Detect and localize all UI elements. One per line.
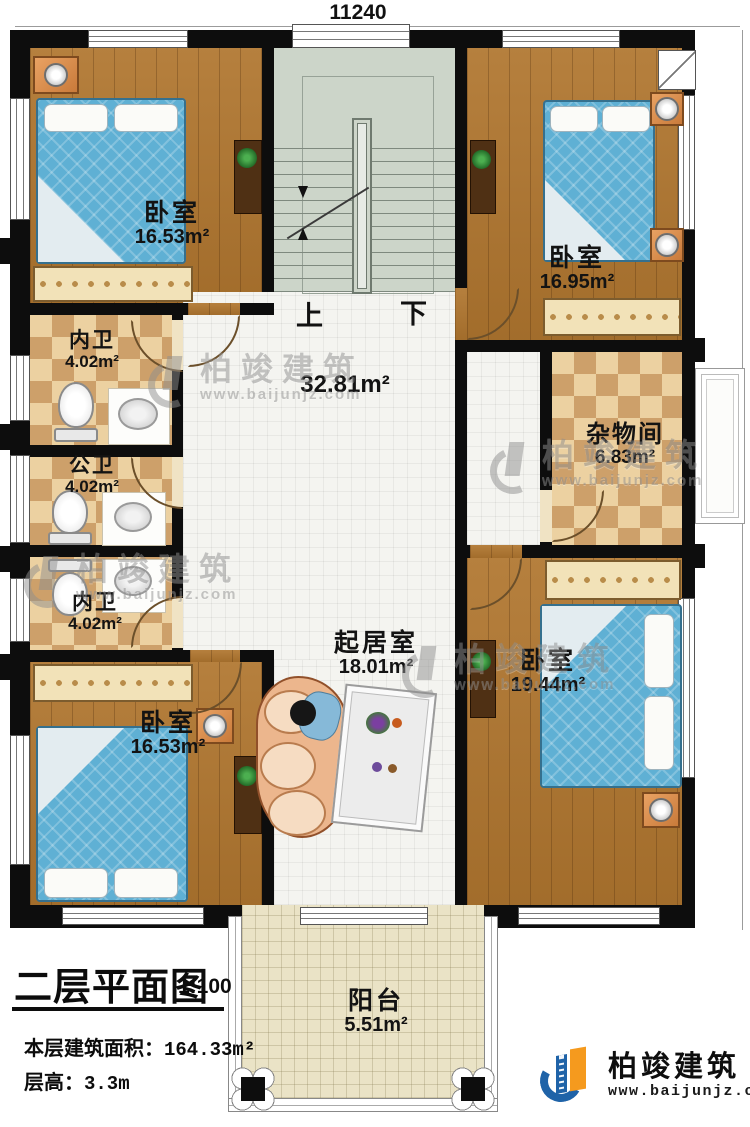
toilet-icon: [58, 382, 94, 428]
watermark-url: www.baijunjz.com: [76, 585, 240, 605]
floor-height-line: 层高：3.3m: [24, 1066, 130, 1095]
window: [62, 907, 204, 925]
coffee-table-icon: [331, 684, 437, 833]
nightstand-icon: [33, 56, 79, 94]
door-opening: [190, 650, 240, 662]
watermark-name: 柏竣建筑: [76, 553, 240, 585]
window: [502, 30, 620, 48]
lamp-icon: [655, 97, 679, 121]
lamp-icon: [44, 63, 68, 87]
watermark: 柏竣建筑 www.baijunjz.com: [402, 642, 618, 696]
wall-pier: [0, 546, 10, 572]
watermark-url: www.baijunjz.com: [542, 471, 706, 491]
lamp-icon: [655, 233, 679, 257]
nightstand-icon: [650, 92, 684, 126]
room-area: 4.02m²: [65, 353, 119, 371]
stair-rail: [352, 118, 372, 294]
flower-icon: [366, 712, 390, 734]
toilet-icon: [52, 490, 88, 534]
room-name: 卧室: [540, 245, 615, 272]
room-area: 4.02m²: [68, 615, 122, 633]
wardrobe-icon: [33, 664, 193, 702]
sink-icon: [114, 502, 152, 532]
sofa-cushion: [268, 790, 326, 836]
brand-website: www.baijunjz.com: [608, 1083, 750, 1100]
wall-pier: [0, 424, 10, 450]
corner-niche: [658, 50, 696, 90]
stair-up-label: 上: [296, 294, 323, 333]
room-label-balcony: 阳台 5.51m²: [344, 988, 407, 1037]
watermark-logo-icon: [148, 352, 192, 406]
watermark-name: 柏竣建筑: [542, 439, 706, 471]
pillow-icon: [550, 106, 598, 132]
floor-height-label: 层高：: [24, 1072, 84, 1094]
balcony-pillar: [230, 1066, 276, 1112]
wall-pier: [695, 338, 705, 362]
window: [10, 735, 30, 865]
title-underline: [12, 1007, 224, 1011]
plan-scale: 1:100: [178, 975, 232, 999]
watermark-name: 柏竣建筑: [454, 643, 618, 675]
window: [88, 30, 188, 48]
brand-logo: 柏竣建筑 www.baijunjz.com: [540, 1042, 750, 1110]
door-opening: [455, 288, 467, 340]
stair-arrow: [298, 228, 308, 240]
pillow-icon: [114, 104, 178, 132]
flower-icon: [388, 764, 397, 773]
balcony-sliding-door: [300, 907, 428, 925]
room-label-bath-inner-top: 内卫 4.02m²: [65, 330, 119, 371]
pillow-icon: [602, 106, 650, 132]
room-label-bedroom-tr: 卧室 16.95m²: [540, 245, 615, 294]
wall-pier: [695, 544, 705, 568]
room-area: 4.02m²: [65, 478, 119, 496]
top-dimension-label: 11240: [329, 1, 386, 25]
nightstand-icon: [650, 228, 684, 262]
nightstand-icon: [642, 792, 680, 828]
toilet-tank-icon: [54, 428, 98, 442]
door-opening: [188, 303, 240, 315]
plant-icon: [237, 766, 257, 786]
door-opening: [470, 545, 522, 558]
room-name: 内卫: [65, 330, 119, 353]
wardrobe-icon: [545, 560, 681, 600]
watermark: 柏竣建筑 www.baijunjz.com: [24, 552, 240, 606]
room-area: 16.53m²: [135, 227, 210, 249]
watermark-logo-icon: [490, 438, 534, 492]
room-name: 阳台: [344, 988, 407, 1015]
plant-icon: [472, 150, 491, 169]
window: [10, 355, 30, 421]
floor-area-value: 164.33m²: [164, 1039, 255, 1061]
toilet-tank-icon: [48, 532, 92, 545]
brand-name: 柏竣建筑: [608, 1052, 750, 1082]
stair-down-label: 下: [400, 292, 427, 331]
flower-icon: [372, 762, 382, 772]
sofa-cushion: [260, 742, 316, 790]
balcony-pillar: [450, 1066, 496, 1112]
person-head-icon: [290, 700, 316, 726]
watermark-logo-icon: [24, 552, 68, 606]
pillow-icon: [114, 868, 178, 898]
floor-area-label: 本层建筑面积：: [24, 1038, 164, 1060]
pillow-icon: [44, 868, 108, 898]
wardrobe-icon: [33, 266, 193, 302]
door-opening: [540, 490, 552, 542]
lamp-icon: [649, 798, 673, 822]
flower-icon: [392, 718, 402, 728]
room-area: 16.95m²: [540, 272, 615, 294]
logo-building-blue: [556, 1054, 567, 1094]
room-label-bath-public: 公卫 4.02m²: [65, 455, 119, 496]
room-label-bedroom-tl: 卧室 16.53m²: [135, 200, 210, 249]
wall-pier: [0, 238, 10, 264]
logo-building-orange: [570, 1047, 586, 1092]
floor-height-value: 3.3m: [84, 1073, 130, 1095]
window: [10, 98, 30, 220]
window: [518, 907, 660, 925]
room-name: 卧室: [135, 200, 210, 227]
wall-pier: [0, 654, 10, 680]
room-area: 16.53m²: [131, 737, 206, 759]
room-name: 卧室: [131, 710, 206, 737]
watermark-url: www.baijunjz.com: [454, 675, 618, 695]
window: [292, 24, 410, 48]
watermark-logo-icon: [402, 642, 446, 696]
watermark-name: 柏竣建筑: [200, 353, 364, 385]
floor-area-line: 本层建筑面积：164.33m²: [24, 1032, 255, 1061]
stair-arrow: [298, 186, 308, 198]
brand-logo-icon: [540, 1042, 602, 1110]
watermark: 柏竣建筑 www.baijunjz.com: [490, 438, 706, 492]
plant-icon: [237, 148, 257, 168]
pillow-icon: [44, 104, 108, 132]
room-area: 5.51m²: [344, 1015, 407, 1037]
room-label-bedroom-bl: 卧室 16.53m²: [131, 710, 206, 759]
window: [10, 455, 30, 543]
lamp-icon: [203, 714, 227, 738]
watermark: 柏竣建筑 www.baijunjz.com: [148, 352, 364, 406]
wardrobe-icon: [543, 298, 681, 336]
pillow-icon: [644, 614, 674, 688]
room-name: 公卫: [65, 455, 119, 478]
pillow-icon: [644, 696, 674, 770]
watermark-url: www.baijunjz.com: [200, 385, 364, 405]
